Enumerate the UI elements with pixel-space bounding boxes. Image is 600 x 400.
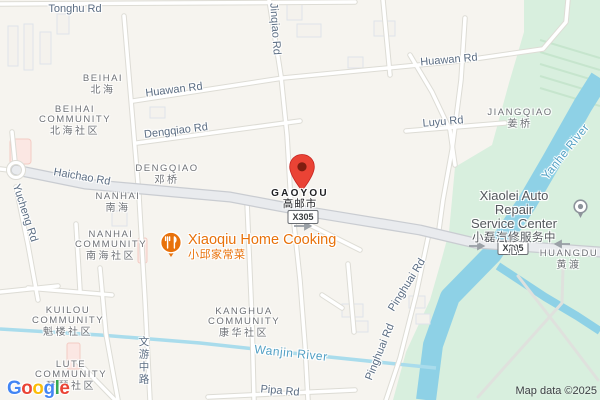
road-label-tonghu: Tonghu Rd [48,3,101,15]
restaurant-pin-icon[interactable] [159,231,183,258]
google-logo[interactable]: Google [7,378,69,400]
road-label-wenyou: 文游中路 [137,336,152,386]
building-outlines [8,3,430,332]
gaoyou-label: GAOYOU 高邮市 [271,188,329,210]
locality-label-beihai: BEIHAI北海 [83,74,123,96]
locality-label-kanghua-community: KANGHUACOMMUNITY 康华社区 [208,307,280,339]
locality-label-nanhai: NANHAI南海 [96,192,141,214]
locality-label-jiangqiao: JIANGQIAO姜桥 [487,108,552,130]
poi-pin-xiaolei[interactable] [573,199,588,218]
shield-x305-west: X305 [287,210,318,224]
locality-label-dengqiao: DENGQIAO邓桥 [135,164,198,186]
poi-label-xiaolei[interactable]: Xiaolei Auto Repair Service Center 小磊汽修服… [471,189,557,258]
locality-label-nanhai-community: NANHAICOMMUNITY 南海社区 [75,230,147,262]
map-canvas[interactable]: Tonghu Rd Jinqiao Rd Huawan Rd Huawan Rd… [0,0,600,400]
gaoyou-marker-pin[interactable] [289,154,315,191]
map-attribution: Map data ©2025 [516,385,598,397]
poi-label-xiaoqiu[interactable]: Xiaoqiu Home Cooking 小邱家常菜 [188,232,336,262]
locality-label-beihai-community: BEIHAICOMMUNITY 北海社区 [39,105,111,137]
locality-label-kuilou-community: KUILOUCOMMUNITY 魁楼社区 [32,306,104,338]
